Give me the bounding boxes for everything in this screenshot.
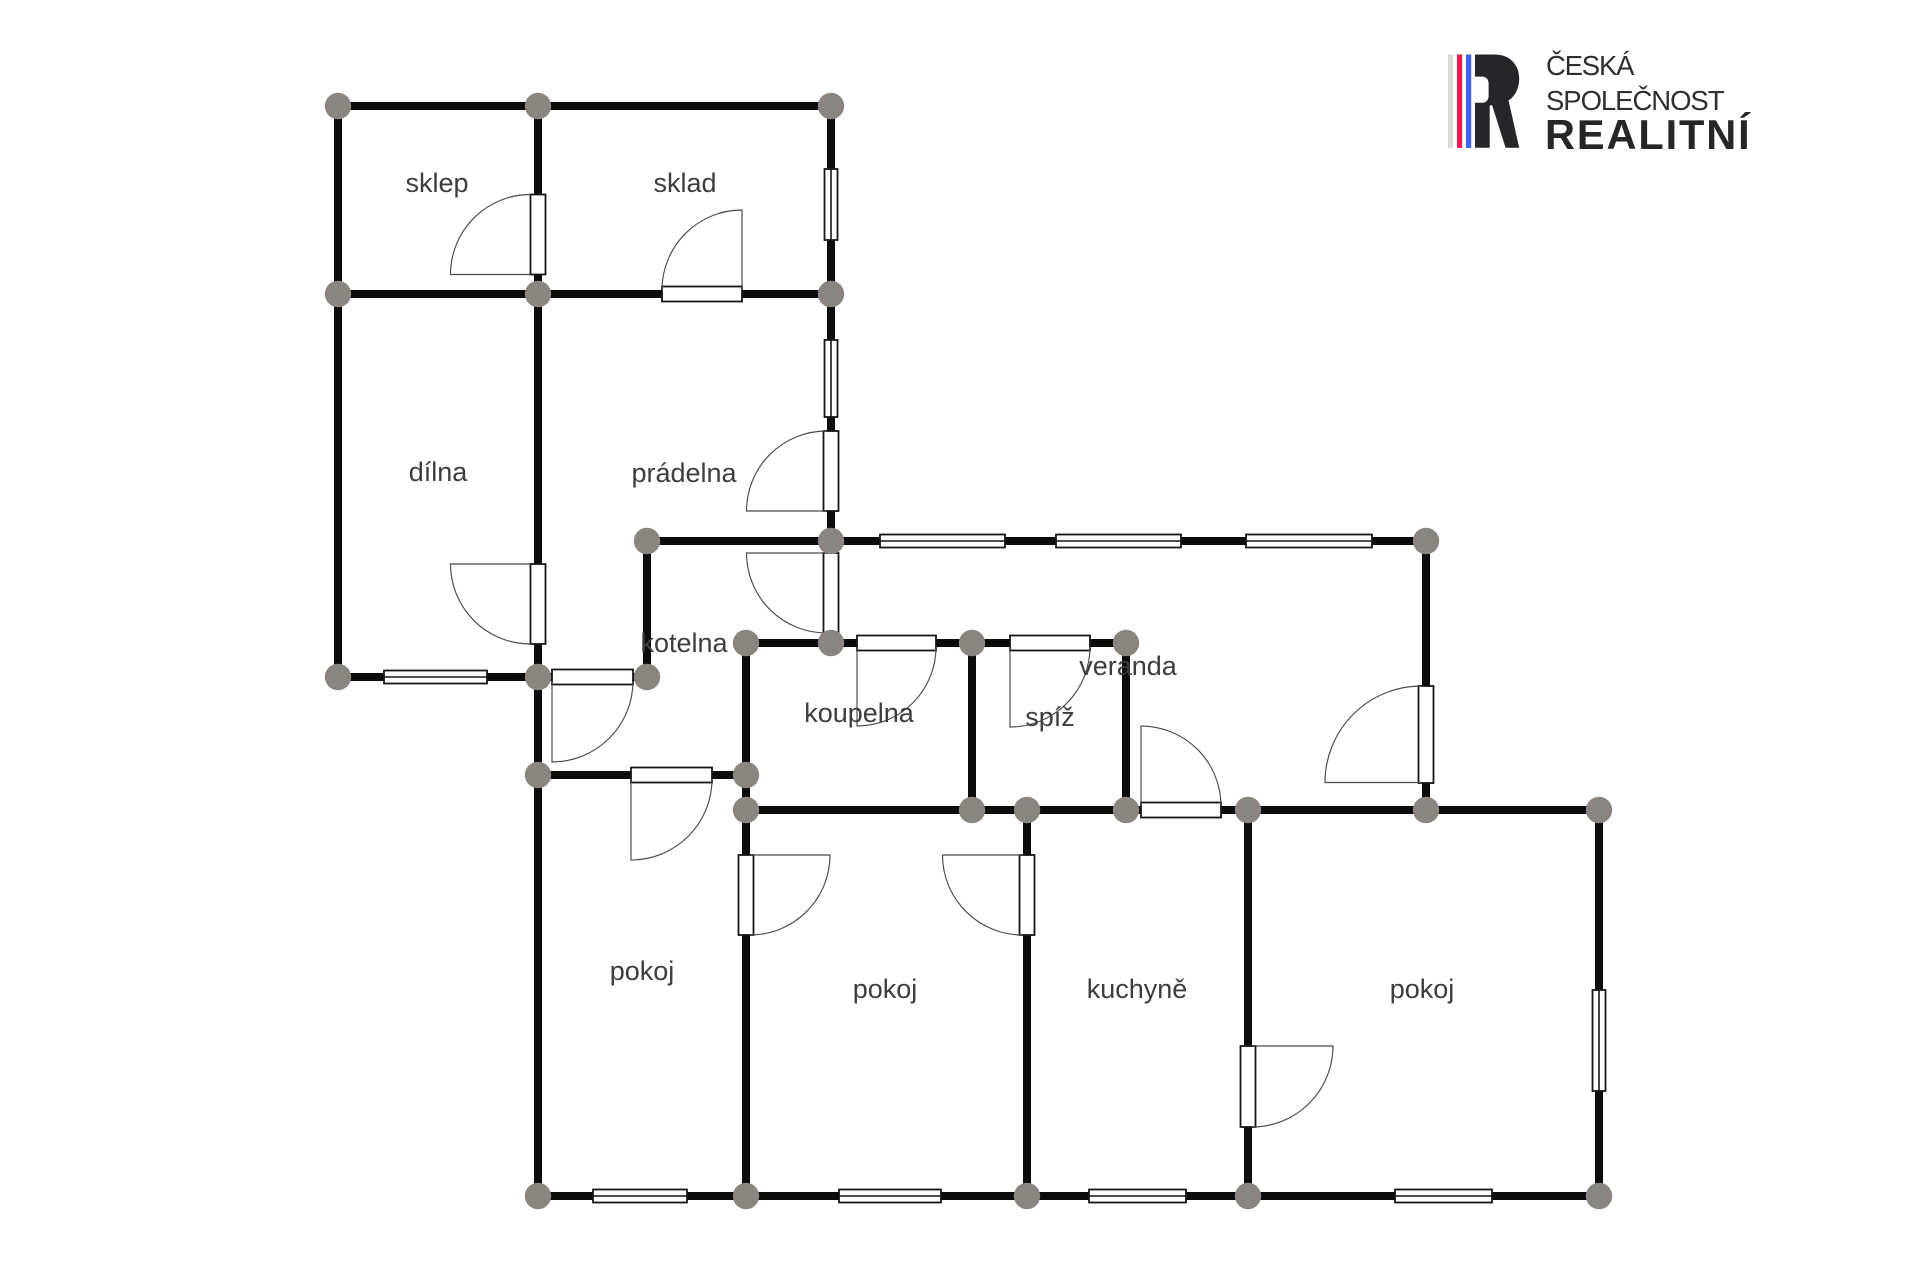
svg-text:pokoj: pokoj	[853, 974, 918, 1004]
svg-text:REALITNÍ: REALITNÍ	[1545, 111, 1752, 158]
svg-text:koupelna: koupelna	[804, 698, 915, 728]
svg-text:sklad: sklad	[653, 168, 716, 198]
svg-text:pokoj: pokoj	[1390, 974, 1455, 1004]
svg-text:ČESKÁ: ČESKÁ	[1546, 50, 1635, 81]
svg-text:prádelna: prádelna	[631, 458, 737, 488]
svg-text:kotelna: kotelna	[640, 628, 728, 658]
svg-text:pokoj: pokoj	[610, 956, 675, 986]
svg-text:sklep: sklep	[405, 168, 468, 198]
svg-text:dílna: dílna	[409, 457, 469, 487]
svg-text:veranda: veranda	[1079, 651, 1178, 681]
svg-text:spíž: spíž	[1025, 702, 1075, 732]
svg-text:kuchyně: kuchyně	[1087, 974, 1188, 1004]
